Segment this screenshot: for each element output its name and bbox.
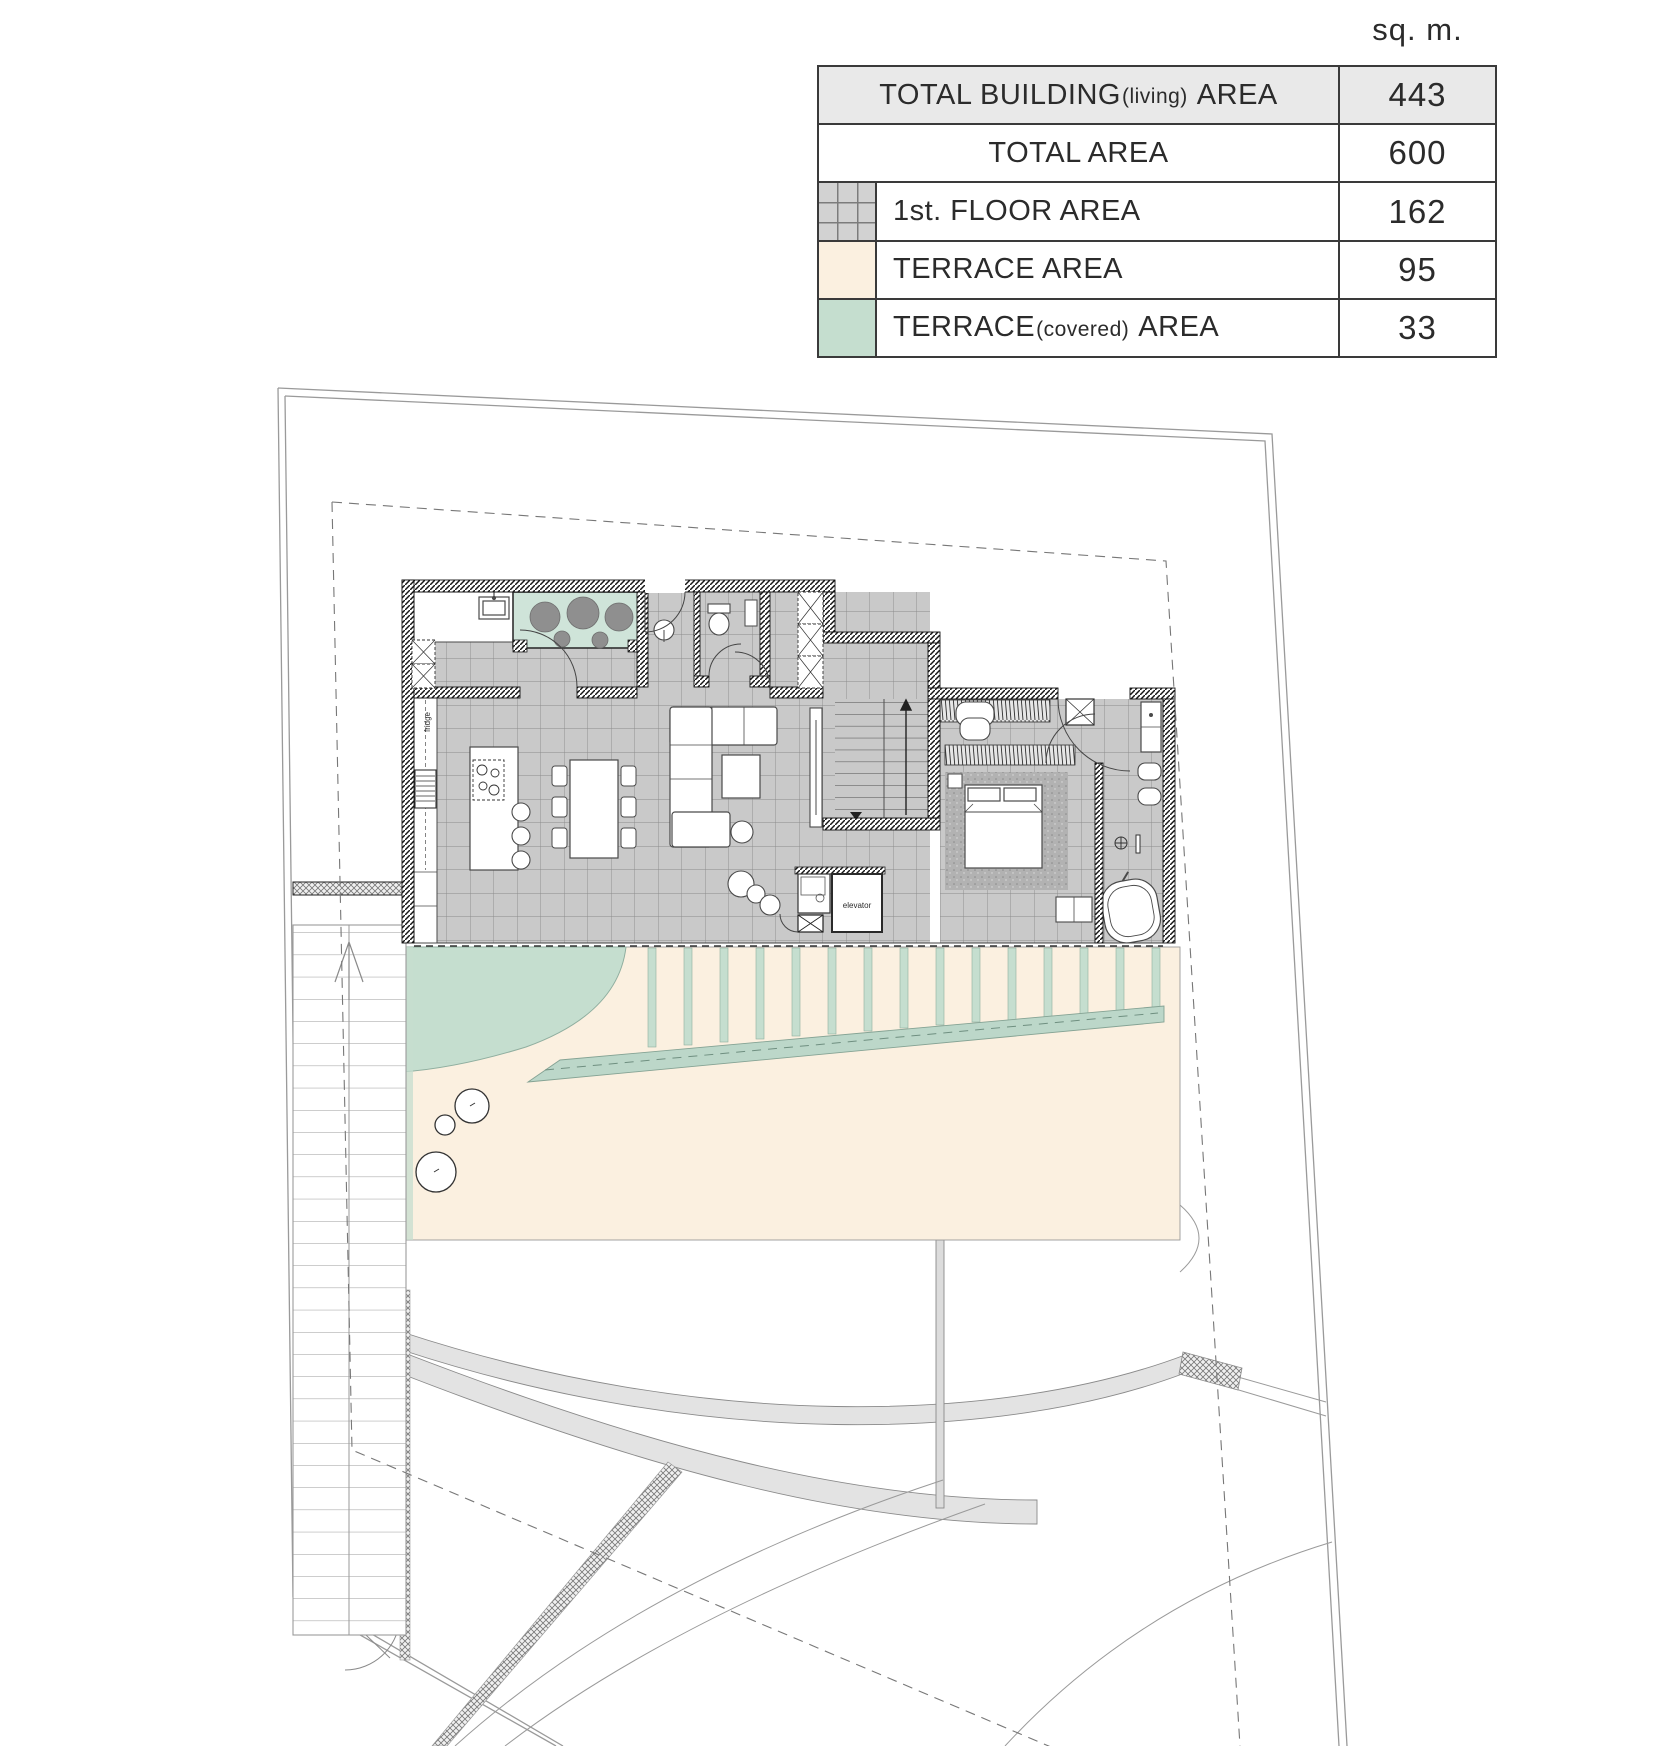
label-text: TOTAL AREA	[988, 137, 1168, 170]
coffee-table	[722, 755, 760, 798]
tree-icon	[435, 1115, 455, 1135]
row-value: 600	[1338, 125, 1495, 181]
terrace-area	[400, 947, 1180, 1660]
table-row: 1st. FLOOR AREA 162	[819, 181, 1495, 239]
row-value: 33	[1338, 300, 1495, 356]
swatch-terrace	[819, 242, 877, 298]
row-label: 1st. FLOOR AREA	[877, 183, 1338, 239]
label-text: 1st. FLOOR AREA	[893, 195, 1141, 228]
table-row: TOTAL BUILDING(living)AREA 443	[819, 67, 1495, 123]
table-row: TERRACE AREA 95	[819, 240, 1495, 298]
armchair	[956, 702, 994, 740]
bed	[965, 785, 1042, 868]
bidet	[1138, 788, 1161, 805]
tree-icon	[416, 1152, 456, 1192]
path-arc-2	[505, 1504, 985, 1746]
swatch-terrace-covered	[819, 300, 877, 356]
table-row: TERRACE(covered)AREA 33	[819, 298, 1495, 356]
row-value: 443	[1338, 67, 1495, 123]
terrace-edge-arc	[1180, 1205, 1199, 1272]
label-text: TOTAL BUILDING	[879, 79, 1121, 112]
fridge-label: fridge	[423, 711, 432, 732]
label-paren: (covered)	[1036, 318, 1129, 342]
label-text: TERRACE AREA	[893, 253, 1123, 286]
table-row: TOTAL AREA 600	[819, 123, 1495, 181]
wardrobe-strip	[945, 745, 1075, 765]
row-label: TOTAL AREA	[819, 125, 1338, 181]
bar-stools	[512, 803, 530, 869]
diagonal-hatched-path	[432, 1462, 682, 1746]
driveway-crosshatch	[1179, 1352, 1242, 1390]
wc-toilet	[708, 604, 730, 635]
dining	[552, 760, 636, 858]
plan-sheet: fridge	[0, 0, 1654, 1746]
path-arc-3	[1005, 1542, 1332, 1746]
tree-icon	[455, 1089, 489, 1123]
row-value: 95	[1338, 242, 1495, 298]
nightstand	[948, 774, 962, 788]
toilet	[1138, 763, 1161, 780]
label-suffix: AREA	[1197, 79, 1278, 112]
pouf	[731, 821, 753, 843]
area-table: TOTAL BUILDING(living)AREA 443 TOTAL ARE…	[817, 65, 1497, 358]
site-roads	[345, 1205, 1332, 1746]
path-arc-1	[455, 1480, 943, 1746]
kitchen-island	[470, 747, 518, 870]
garden-wall-lower	[936, 1240, 944, 1508]
dining-table	[570, 760, 618, 858]
label-suffix: AREA	[1138, 311, 1219, 344]
interior-staircase	[835, 699, 928, 820]
units-label: sq. m.	[1338, 12, 1497, 48]
row-value: 162	[1338, 183, 1495, 239]
row-label: TOTAL BUILDING(living)AREA	[819, 67, 1338, 123]
row-label: TERRACE(covered)AREA	[877, 300, 1338, 356]
label-text: TERRACE	[893, 311, 1035, 344]
exterior-staircase	[293, 882, 406, 1635]
elevator-label: elevator	[843, 901, 872, 910]
swatch-floor-tile	[819, 183, 877, 239]
garden-wall	[293, 882, 403, 895]
wc-shelf	[745, 600, 757, 626]
label-paren: (living)	[1122, 85, 1188, 109]
row-label: TERRACE AREA	[877, 242, 1338, 298]
